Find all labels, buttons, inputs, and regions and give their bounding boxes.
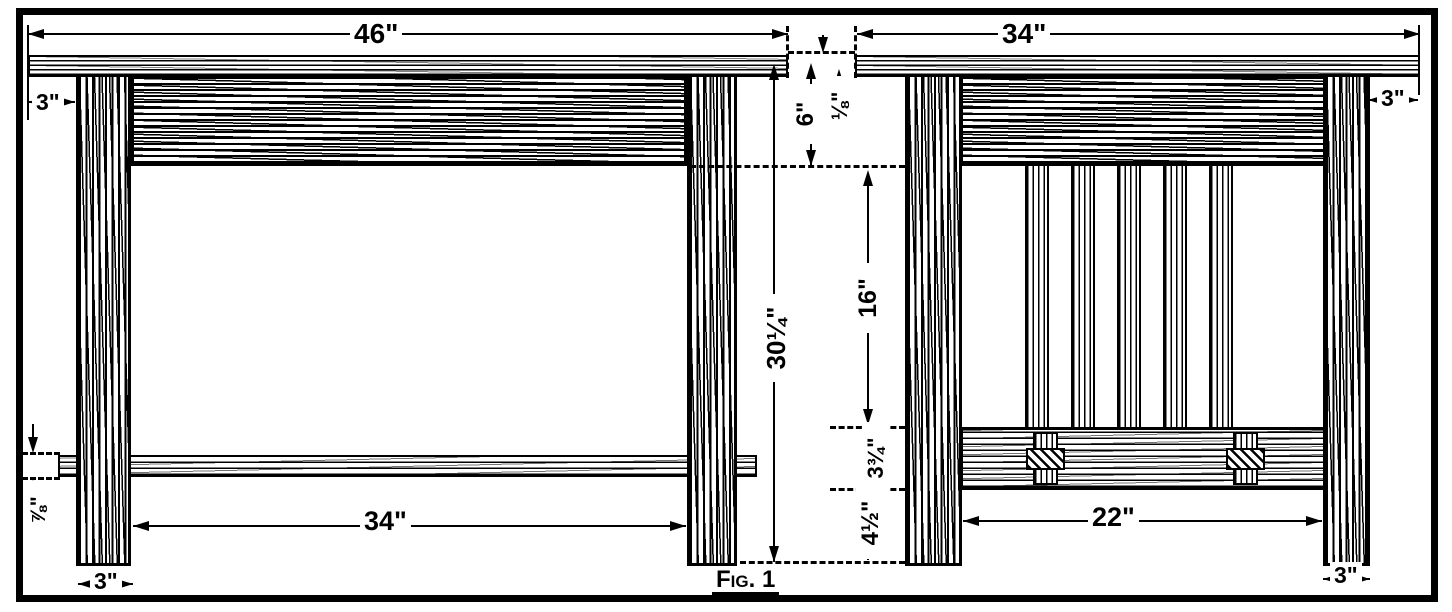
front-apron-rail [131,74,687,166]
dim-label-side-between-legs: 22" [1088,502,1139,533]
dim-line-34-top [857,33,1420,35]
dim-label-top-reveal: ⅛" [826,76,854,136]
front-right-leg [687,74,737,566]
side-slat-5 [1209,164,1233,429]
side-slat-1 [1025,164,1049,429]
arrowhead [806,63,816,79]
arrowhead [1306,516,1322,526]
tabletop-edge-front [28,55,788,77]
arrowhead [857,29,873,39]
side-shelf [960,427,1326,490]
side-left-leg [905,74,962,566]
tenon-key-wedge-2 [1226,448,1265,470]
dim-label-side-top-width: 34" [998,18,1050,50]
arrowhead [133,521,149,531]
front-stretcher-rail [58,455,757,477]
arrowhead [772,29,788,39]
side-slat-3 [1117,164,1141,429]
dim-label-front-leg-bottom: 3" [90,568,122,595]
arrowhead [670,521,686,531]
dim-label-rail-depth: 6" [792,84,820,144]
dim-label-side-top-overhang: 3" [1377,85,1409,112]
side-top-rail [960,74,1326,166]
technical-drawing-canvas: 46" 34" 3" 3" 34" 22" 3" 3" 30¼" 6" ⅛" 1… [0,0,1452,612]
dim-label-slat-length: 16" [853,263,883,333]
side-slat-4 [1163,164,1187,429]
arrowhead [806,150,816,166]
arrowhead [963,516,979,526]
arrowhead [28,29,44,39]
dim-label-shelf-to-floor: 4½" [856,487,886,559]
dim-label-front-top-width: 46" [350,18,402,50]
side-slat-2 [1071,164,1095,429]
figure-caption: Fig. 1 [712,567,779,595]
dim-label-front-between-legs: 34" [360,506,411,537]
dim-label-shelf-depth: 3¾" [862,422,890,494]
apron-bottom-dash-line [690,165,905,168]
dim-label-side-leg-bottom: 3" [1330,562,1362,589]
front-left-leg [76,74,131,566]
side-right-leg [1323,74,1370,566]
dim-label-front-top-overhang: 3" [32,89,64,116]
tabletop-edge-side [855,55,1420,77]
arrowhead [769,64,779,80]
floor-dash-line [740,561,905,564]
arrowhead [1404,29,1420,39]
dim-label-stretcher-thickness: ⅞" [25,481,51,539]
arrowhead [863,170,873,186]
arrowhead [818,37,828,53]
dim-line-22 [963,520,1322,522]
dim-line-46 [28,33,788,35]
arrowhead [769,546,779,562]
arrowhead [28,437,38,453]
dim-label-height-below-top: 30¼" [760,294,792,382]
tenon-key-wedge-1 [1026,448,1065,470]
